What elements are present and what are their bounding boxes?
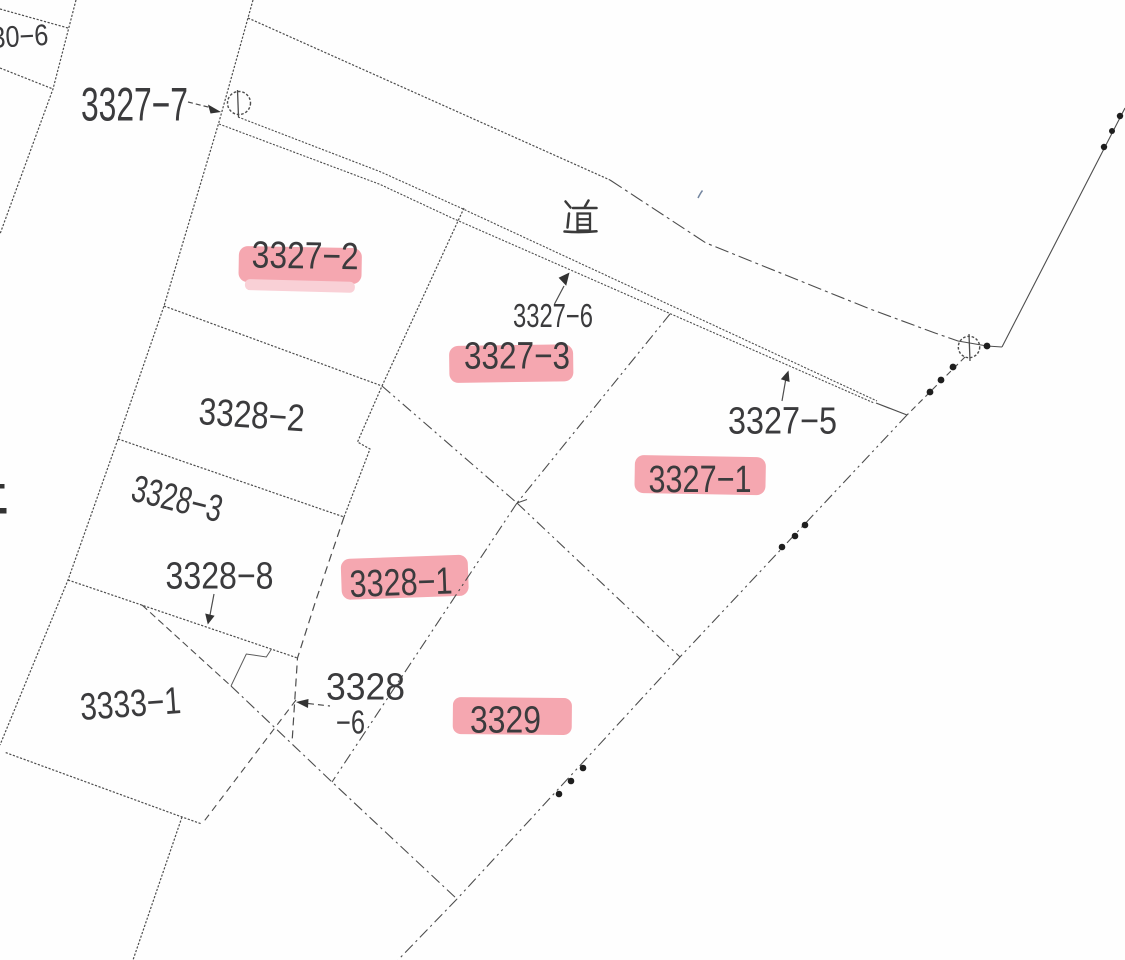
svg-text:3328: 3328 [326, 667, 405, 709]
svg-text:3328−1: 3328−1 [349, 560, 453, 606]
svg-text:3333−1: 3333−1 [79, 680, 183, 729]
svg-text:3328−2: 3328−2 [197, 391, 306, 440]
svg-text:3327−7: 3327−7 [81, 78, 188, 131]
svg-text:3327−5: 3327−5 [728, 401, 837, 443]
svg-text:3327−2: 3327−2 [251, 234, 359, 278]
svg-text:3329: 3329 [470, 700, 541, 742]
svg-text:3328−8: 3328−8 [166, 556, 274, 598]
svg-text:−6: −6 [336, 704, 365, 741]
svg-text:3327−3: 3327−3 [464, 336, 570, 378]
svg-text:3327−1: 3327−1 [649, 459, 752, 501]
svg-text:3327−6: 3327−6 [513, 297, 593, 334]
svg-text:30−6: 30−6 [0, 19, 49, 55]
